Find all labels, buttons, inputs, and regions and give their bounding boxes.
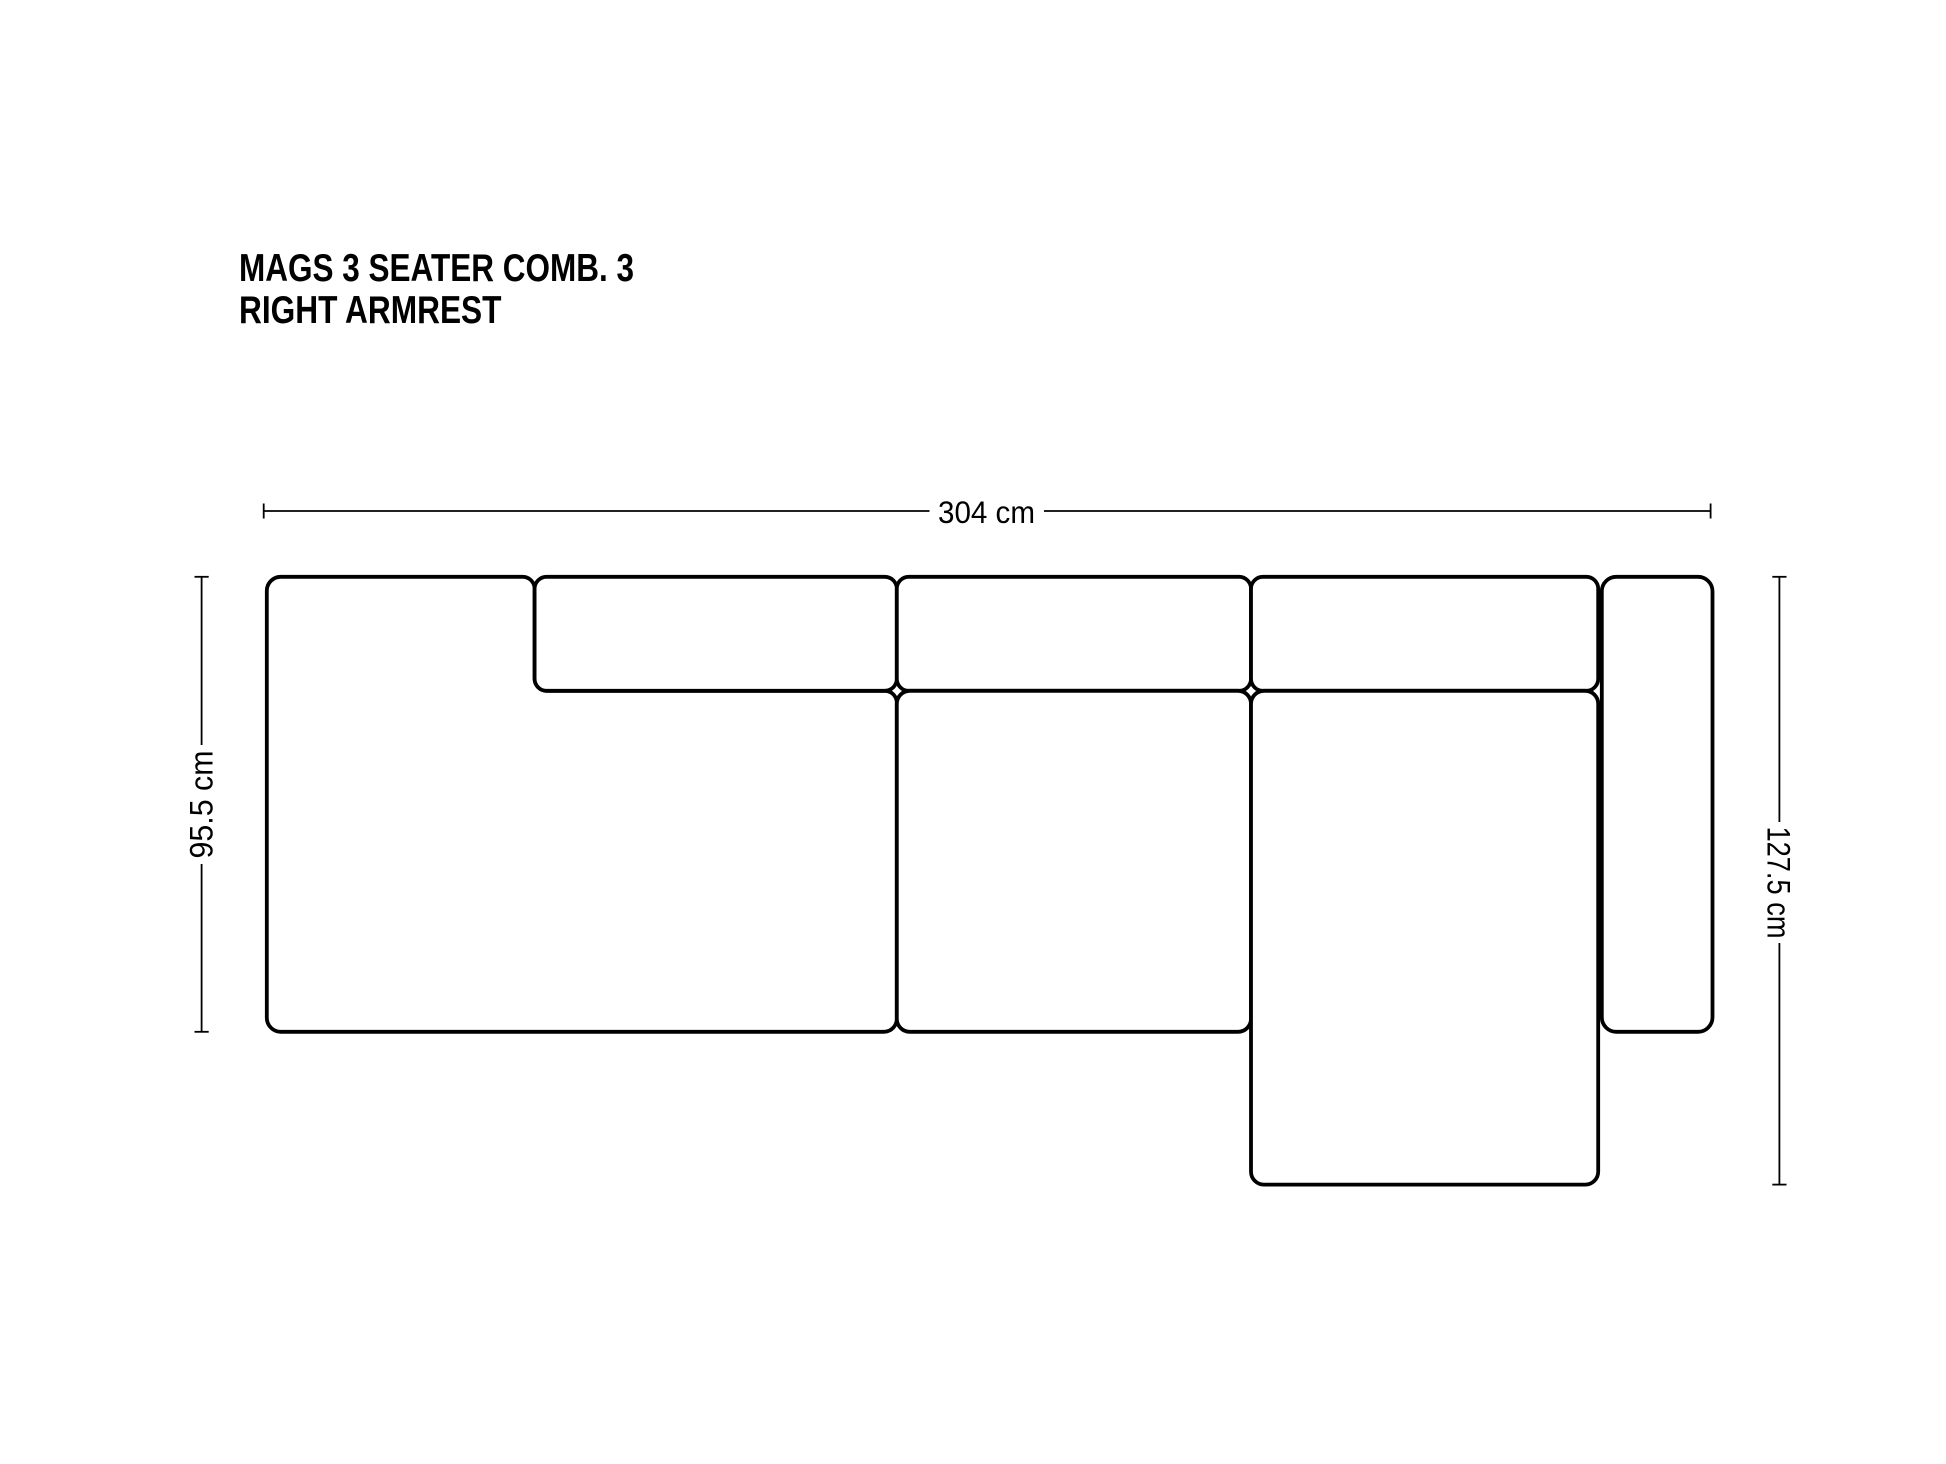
svg-text:127.5 cm: 127.5 cm	[1760, 827, 1796, 939]
svg-text:95.5 cm: 95.5 cm	[184, 751, 220, 859]
svg-text:304 cm: 304 cm	[938, 494, 1035, 530]
svg-text:RIGHT ARMREST: RIGHT ARMREST	[239, 289, 502, 332]
svg-text:MAGS 3 SEATER COMB. 3: MAGS 3 SEATER COMB. 3	[239, 247, 634, 290]
